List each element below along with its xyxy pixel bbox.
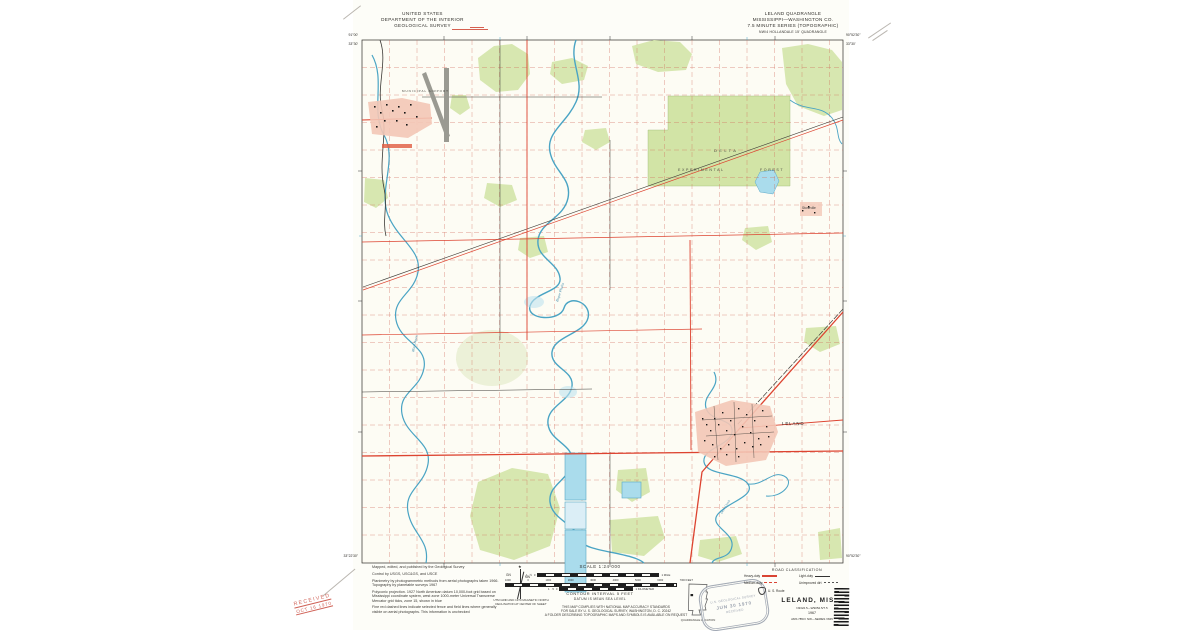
red-route-note-mark-2 xyxy=(470,27,484,28)
topographic-map-body: MUNICIPAL AIRPORT DELTA EXPERIMENTAL FOR… xyxy=(362,40,843,563)
legend-medium-duty-label: Medium-duty xyxy=(744,581,762,585)
usgs-topo-scan-page: { "colors": { "paper": "#fdfdf8", "veget… xyxy=(0,0,1200,630)
label-leland: LELAND xyxy=(782,421,804,426)
pond-small xyxy=(622,482,641,498)
label-municipal-airport: MUNICIPAL AIRPORT xyxy=(402,89,449,93)
scale-title: SCALE 1:24 000 xyxy=(560,564,640,569)
feet-label: 1000 xyxy=(545,579,551,582)
credit-line-5: Fine red dashed lines indicate selected … xyxy=(372,605,500,614)
credit-line-3: Planimetry by photogrammetric methods fr… xyxy=(372,579,500,588)
feet-label: 5000 xyxy=(635,579,641,582)
feet-label: 0 xyxy=(527,579,528,582)
km-label-right: 1 KILOMETER xyxy=(635,587,654,591)
credit-line-1: Mapped, edited, and published by the Geo… xyxy=(372,565,500,569)
feet-label: 4000 xyxy=(613,579,619,582)
credit-line-2: Control by USGS, USC&GS, and USCE xyxy=(372,572,500,576)
corner-label-tl-lat: 33°30' xyxy=(330,42,358,46)
us-route-shield-icon xyxy=(758,587,766,595)
legend-heavy-duty-label: Heavy-duty xyxy=(744,574,760,578)
km-label-0: 0 xyxy=(556,587,558,591)
grid-north-label: GN xyxy=(506,573,511,577)
credit-note-block: Mapped, edited, and published by the Geo… xyxy=(372,565,500,617)
light-duty-line-sample xyxy=(815,576,830,577)
miles-bar xyxy=(537,573,659,577)
urban-leland xyxy=(695,400,778,466)
pale-field-area xyxy=(456,330,528,386)
corner-label-br-lon: 90°52'30" xyxy=(846,554,861,558)
label-stoneville: Stoneville xyxy=(802,206,816,210)
feet-label: 6000 xyxy=(657,579,663,582)
red-route-note-mark xyxy=(452,29,488,30)
road-classification-title: ROAD CLASSIFICATION xyxy=(744,568,850,572)
barcode-sticker xyxy=(834,588,850,626)
feet-label: 2000 xyxy=(568,579,574,582)
km-label-half: .5 xyxy=(552,587,554,591)
label-forest: FOREST xyxy=(760,168,784,172)
pond-north xyxy=(565,453,586,500)
feet-label: 1000 xyxy=(505,579,511,582)
feet-label: 7000 FEET xyxy=(680,579,693,582)
unimproved-dirt-line-sample xyxy=(824,582,839,583)
accuracy-line-3: A FOLDER DESCRIBING TOPOGRAPHIC MAPS AND… xyxy=(518,613,714,617)
miles-label-half: ½ xyxy=(530,573,532,577)
greenville-red-block xyxy=(382,144,412,148)
quadrangle-title-block: LELAND QUADRANGLE MISSISSIPPI—WASHINGTON… xyxy=(698,11,888,35)
datum-note: DATUM IS MEAN SEA LEVEL xyxy=(515,597,685,601)
contour-interval-note: CONTOUR INTERVAL 5 FEET xyxy=(515,591,685,596)
corner-label-tr-lon: 90°52'30" xyxy=(846,33,861,37)
corner-label-tr-lat: 33°30' xyxy=(846,42,856,46)
scale-bar-miles: 1 ½ 0 1 MILE xyxy=(526,573,670,577)
legend-light-duty-label: Light-duty xyxy=(799,574,813,578)
quad-location-dot xyxy=(691,594,694,596)
label-experimental: EXPERIMENTAL xyxy=(678,168,725,172)
heavy-duty-line-sample xyxy=(762,575,777,577)
us-route-label: U. S. Route xyxy=(768,589,784,593)
miles-label-1: 1 xyxy=(526,573,528,577)
pond-middle-drained xyxy=(565,502,586,529)
km-label-1: 1 xyxy=(548,587,550,591)
corner-label-tl-lon: 91°00' xyxy=(330,33,358,37)
miles-label-right: 1 MILE xyxy=(661,573,670,577)
accuracy-note-block: THIS MAP COMPLIES WITH NATIONAL MAP ACCU… xyxy=(518,605,714,617)
miles-label-0: 0 xyxy=(534,573,536,577)
oxbow-swamp-2 xyxy=(559,386,577,398)
label-delta: DELTA xyxy=(714,148,738,153)
corner-label-bl-lat: 33°22'30" xyxy=(326,554,358,558)
received-date-stamp: RECEIVED OCT 16 1970 xyxy=(293,593,334,616)
feet-label: 3000 xyxy=(590,579,596,582)
medium-duty-line-sample xyxy=(764,582,779,584)
legend-unimproved-label: Unimproved dirt xyxy=(799,581,822,585)
